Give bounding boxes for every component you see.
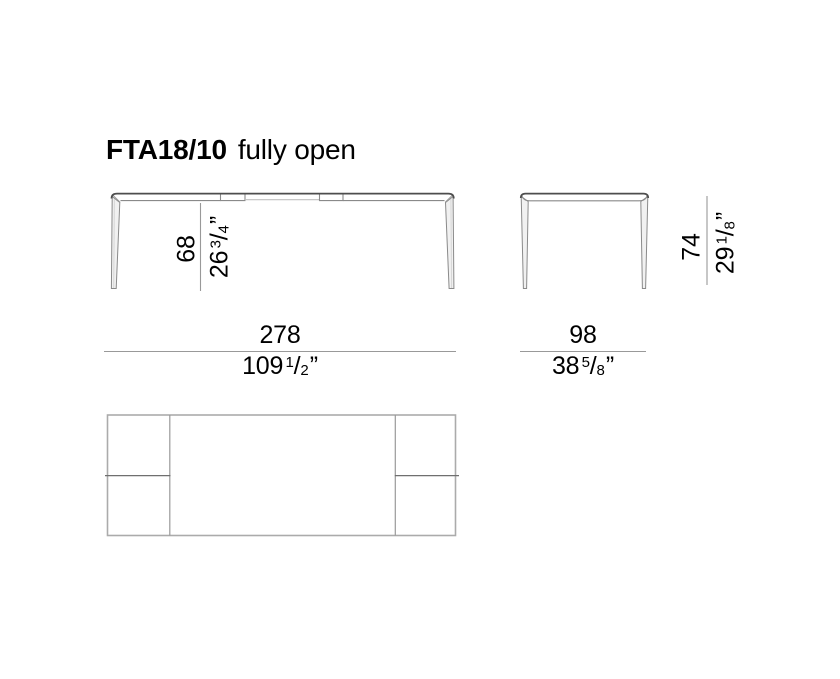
technical-drawing <box>0 0 840 679</box>
side-height-imperial-whole: 29 <box>712 247 740 274</box>
front-elevation-view <box>111 194 454 291</box>
side-height-metric: 74 <box>680 233 705 260</box>
front-height-imperial: 263/4” <box>208 216 233 278</box>
front-left-leg-highlight <box>114 199 115 288</box>
front-width-inch-mark: ” <box>310 352 318 380</box>
front-height-inch-mark: ” <box>206 216 234 224</box>
model-state-label: fully open <box>238 134 356 165</box>
side-tabletop-underside <box>522 196 647 201</box>
side-right-leg <box>641 197 648 289</box>
side-depth-imperial-denominator: 8 <box>597 362 605 379</box>
front-width-imperial-whole: 109 <box>242 352 283 380</box>
side-depth-inch-mark: ” <box>606 352 614 380</box>
side-height-inch-mark: ” <box>712 212 740 220</box>
front-extension-seam-right <box>320 194 344 201</box>
front-height-metric: 68 <box>175 235 200 262</box>
front-height-imperial-numerator: 3 <box>208 240 225 248</box>
plan-view <box>105 415 459 536</box>
side-depth-imperial: 385/8” <box>552 354 614 379</box>
side-depth-metric: 98 <box>569 323 596 348</box>
model-code: FTA18/10 <box>106 134 227 165</box>
front-height-imperial-whole: 26 <box>206 251 234 278</box>
front-width-imperial-numerator: 1 <box>285 354 293 371</box>
side-height-imperial-denominator: 8 <box>721 221 738 229</box>
side-left-leg <box>521 197 528 289</box>
side-tabletop-top-edge <box>521 194 648 198</box>
front-tabletop-top-edge <box>112 194 454 199</box>
front-right-leg <box>446 197 454 289</box>
drawing-title: FTA18/10fully open <box>106 136 356 164</box>
side-height-imperial: 291/8” <box>714 212 739 274</box>
front-left-leg <box>111 197 119 289</box>
front-width-metric: 278 <box>259 323 300 348</box>
side-depth-imperial-whole: 38 <box>552 352 579 380</box>
front-width-imperial-denominator: 2 <box>300 362 308 379</box>
side-depth-imperial-slash: / <box>590 352 597 380</box>
front-right-leg-highlight <box>451 199 452 288</box>
front-height-imperial-denominator: 4 <box>215 225 232 233</box>
front-extension-seam-left <box>221 194 246 201</box>
side-depth-imperial-numerator: 5 <box>582 354 590 371</box>
front-width-imperial: 1091/2” <box>242 354 318 379</box>
side-height-imperial-numerator: 1 <box>714 236 731 244</box>
furniture-spec-sheet: FTA18/10fully open 68 263/4” 74 291/8” 2… <box>0 0 840 679</box>
